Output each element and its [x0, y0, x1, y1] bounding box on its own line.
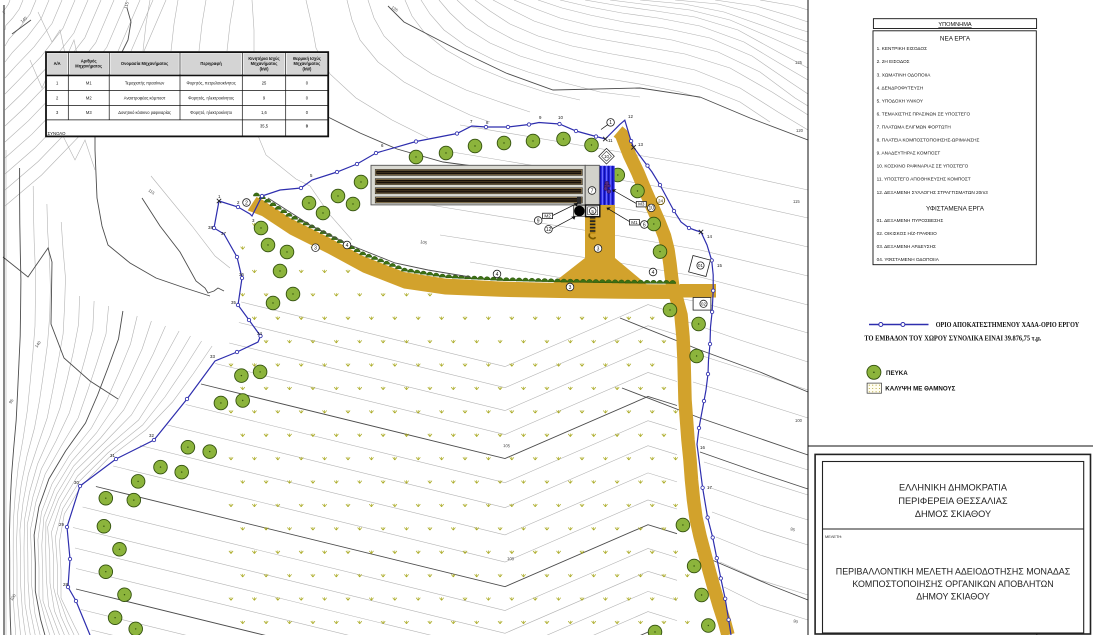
svg-text:Ονομασία Μηχανήματος: Ονομασία Μηχανήματος	[121, 61, 168, 66]
svg-text:11. ΥΠΟΣΤΕΓΟ ΑΠΟΘΗΚΕΥΣΗΣ ΚΟΜΠΟ: 11. ΥΠΟΣΤΕΓΟ ΑΠΟΘΗΚΕΥΣΗΣ ΚΟΜΠΟΣΤ	[877, 177, 971, 182]
svg-text:1. ΚΕΝΤΡΙΚΗ ΕΙΣΟΔΟΣ: 1. ΚΕΝΤΡΙΚΗ ΕΙΣΟΔΟΣ	[877, 46, 928, 51]
svg-text:34: 34	[257, 331, 262, 336]
svg-text:35: 35	[231, 300, 236, 305]
svg-text:03. ΔΕΞΑΜΕΝΗ ΑΡΔΕΥΣΗΣ: 03. ΔΕΞΑΜΕΝΗ ΑΡΔΕΥΣΗΣ	[877, 244, 936, 249]
svg-text:12: 12	[628, 114, 633, 119]
svg-text:ΥΠΟΜΝΗΜΑ: ΥΠΟΜΝΗΜΑ	[938, 22, 972, 28]
svg-text:Μηχανήματος: Μηχανήματος	[75, 64, 102, 69]
svg-text:14: 14	[707, 234, 712, 239]
svg-text:4: 4	[652, 270, 655, 276]
svg-text:Φορητό, ηλεκτροκίνητο: Φορητό, ηλεκτροκίνητο	[190, 110, 233, 115]
svg-text:100: 100	[795, 418, 803, 423]
svg-text:ΝΕΑ ΕΡΓΑ: ΝΕΑ ΕΡΓΑ	[940, 36, 971, 43]
svg-text:ΠΕΥΚΑ: ΠΕΥΚΑ	[886, 370, 908, 377]
svg-text:28: 28	[63, 582, 68, 587]
svg-text:13: 13	[638, 142, 643, 147]
svg-text:M1: M1	[86, 81, 92, 86]
svg-text:7: 7	[591, 188, 594, 194]
svg-text:ΜΕΛΕΤΗ:: ΜΕΛΕΤΗ:	[825, 534, 842, 539]
svg-text:M3: M3	[86, 110, 92, 115]
svg-text:01: 01	[698, 263, 703, 268]
svg-text:10: 10	[604, 154, 609, 159]
svg-text:37: 37	[221, 231, 226, 236]
svg-text:ΚΑΛΥΨΗ ΜΕ ΘΑΜΝΟΥΣ: ΚΑΛΥΨΗ ΜΕ ΘΑΜΝΟΥΣ	[885, 386, 955, 393]
svg-text:4: 4	[496, 272, 499, 278]
svg-text:120: 120	[796, 128, 804, 133]
svg-text:Δονητικό κόσκινο ραφιναρίας: Δονητικό κόσκινο ραφιναρίας	[118, 110, 171, 115]
svg-text:(kW): (kW)	[260, 66, 270, 71]
svg-text:4. ΔΕΝΔΡΟΦΥΤΕΥΣΗ: 4. ΔΕΝΔΡΟΦΥΤΕΥΣΗ	[877, 85, 924, 90]
svg-text:ΠΕΡΙΒΑΛΛΟΝΤΙΚΗ ΜΕΛΕΤΗ ΑΔΕΙΟΔΟΤ: ΠΕΡΙΒΑΛΛΟΝΤΙΚΗ ΜΕΛΕΤΗ ΑΔΕΙΟΔΟΤΗΣΗΣ ΜΟΝΑΔ…	[836, 566, 1071, 576]
svg-text:38: 38	[208, 225, 213, 230]
svg-text:2: 2	[245, 200, 248, 206]
svg-text:5: 5	[591, 209, 594, 214]
svg-text:12. ΔΕΞΑΜΕΝΗ ΣΥΛΛΟΓΗΣ ΣΤΡΑΓΓΙΣ: 12. ΔΕΞΑΜΕΝΗ ΣΥΛΛΟΓΗΣ ΣΤΡΑΓΓΙΣΜΑΤΩΝ 20m3	[877, 190, 989, 195]
svg-text:4: 4	[346, 243, 349, 249]
svg-text:1,6: 1,6	[261, 110, 267, 115]
svg-text:1: 1	[609, 120, 612, 126]
svg-text:ΟΡΙΟ ΑΠΟΚΑΤΕΣΤΗΜΕΝΟΥ ΧΑΔΑ-ΟΡΙΟ: ΟΡΙΟ ΑΠΟΚΑΤΕΣΤΗΜΕΝΟΥ ΧΑΔΑ-ΟΡΙΟ ΕΡΓΟΥ	[936, 320, 1080, 329]
svg-text:3: 3	[569, 285, 572, 291]
svg-text:02. ΟΙΚΙΣΚΟΣ Η/Ζ-ΓΡΑΦΕΙΟ: 02. ΟΙΚΙΣΚΟΣ Η/Ζ-ΓΡΑΦΕΙΟ	[877, 231, 938, 236]
svg-text:M3: M3	[638, 202, 645, 207]
svg-text:Αναστροφέας κόμποστ: Αναστροφέας κόμποστ	[124, 96, 166, 101]
svg-text:10: 10	[558, 115, 563, 120]
svg-text:32: 32	[149, 433, 154, 438]
svg-text:3. ΧΩΜΑΤΙΝΗ ΟΔΟΠΟΙΙΑ: 3. ΧΩΜΑΤΙΝΗ ΟΔΟΠΟΙΙΑ	[877, 72, 932, 77]
svg-text:115: 115	[793, 199, 800, 204]
svg-text:9. ΑΝΑΔΕΥΤΗΡΑΣ ΚΟΜΠΟΣΤ: 9. ΑΝΑΔΕΥΤΗΡΑΣ ΚΟΜΠΟΣΤ	[877, 151, 941, 156]
svg-text:9: 9	[537, 218, 540, 224]
svg-text:2. 2Η ΕΙΣΟΔΟΣ: 2. 2Η ΕΙΣΟΔΟΣ	[877, 59, 910, 64]
svg-text:16: 16	[700, 445, 705, 450]
svg-text:02: 02	[701, 301, 706, 306]
svg-text:Φορητός, ηλεκτροκίνητος: Φορητός, ηλεκτροκίνητος	[188, 96, 234, 101]
svg-text:3: 3	[314, 246, 317, 252]
svg-text:M1: M1	[631, 220, 638, 225]
svg-text:12: 12	[546, 227, 552, 233]
svg-text:6: 6	[643, 222, 646, 228]
svg-text:5. ΥΠΟΔΟΧΗ ΥΛΙΚΟΥ: 5. ΥΠΟΔΟΧΗ ΥΛΙΚΟΥ	[877, 98, 924, 103]
svg-text:11: 11	[608, 138, 613, 143]
svg-text:29: 29	[59, 522, 64, 527]
svg-text:M2: M2	[86, 96, 92, 101]
svg-text:25: 25	[262, 81, 267, 86]
svg-text:10. ΚΟΣΚΙΝΟ ΡΑΦΙΝΑΡΙΑΣ ΣΕ ΥΠΟΣ: 10. ΚΟΣΚΙΝΟ ΡΑΦΙΝΑΡΙΑΣ ΣΕ ΥΠΟΣΤΕΓΟ	[877, 164, 969, 169]
svg-text:6. ΤΕΜΑΧΙΣΤΗΣ ΠΡΑΣΙΝΩΝ ΣΕ ΥΠΟΣ: 6. ΤΕΜΑΧΙΣΤΗΣ ΠΡΑΣΙΝΩΝ ΣΕ ΥΠΟΣΤΕΓΟ	[877, 112, 971, 117]
svg-text:ΠΕΡΙΦΕΡΕΙΑ ΘΕΣΣΑΛΙΑΣ: ΠΕΡΙΦΕΡΕΙΑ ΘΕΣΣΑΛΙΑΣ	[898, 496, 1007, 506]
svg-text:ΤΟ ΕΜΒΑΔΟΝ ΤΟΥ ΧΩΡΟΥ ΣΥΝΟΛΙΚΑ: ΤΟ ΕΜΒΑΔΟΝ ΤΟΥ ΧΩΡΟΥ ΣΥΝΟΛΙΚΑ ΕΙΝΑΙ 39.8…	[864, 333, 1041, 342]
svg-text:35,5: 35,5	[260, 124, 269, 129]
svg-text:33: 33	[210, 354, 215, 359]
svg-text:8. ΠΛΑΤΕΙΑ ΚΟΜΠΟΣΤΟΠΟΙΗΣΗΣ-ΩΡΙ: 8. ΠΛΑΤΕΙΑ ΚΟΜΠΟΣΤΟΠΟΙΗΣΗΣ-ΩΡΙΜΑΝΣΗΣ	[877, 138, 980, 143]
svg-text:10: 10	[649, 206, 655, 212]
svg-text:36: 36	[239, 272, 244, 277]
svg-text:Φορητός, πετρελαιοκίνητος: Φορητός, πετρελαιοκίνητος	[186, 81, 235, 86]
svg-text:24: 24	[658, 198, 664, 203]
svg-text:ΔΗΜΟΣ ΣΚΙΑΘΟΥ: ΔΗΜΟΣ ΣΚΙΑΘΟΥ	[915, 509, 991, 519]
svg-text:04. ΥΦΙΣΤΑΜΕΝΗ ΟΔΟΠΟΙΙΑ: 04. ΥΦΙΣΤΑΜΕΝΗ ΟΔΟΠΟΙΙΑ	[877, 257, 940, 262]
svg-text:105: 105	[503, 443, 511, 448]
svg-text:3: 3	[597, 246, 600, 252]
svg-text:30: 30	[74, 480, 79, 485]
svg-text:(kW): (kW)	[302, 66, 312, 71]
svg-text:Α/Α: Α/Α	[54, 61, 61, 66]
svg-text:Τεμαχιστής πρασίνων: Τεμαχιστής πρασίνων	[125, 81, 164, 86]
svg-text:ΥΦΙΣΤΑΜΕΝΑ ΕΡΓΑ: ΥΦΙΣΤΑΜΕΝΑ ΕΡΓΑ	[926, 206, 985, 213]
svg-text:M2: M2	[544, 213, 551, 218]
svg-text:ΔΗΜΟΥ ΣΚΙΑΘΟΥ: ΔΗΜΟΥ ΣΚΙΑΘΟΥ	[916, 591, 990, 601]
svg-text:17: 17	[707, 485, 712, 490]
svg-text:31: 31	[110, 453, 115, 458]
svg-text:01. ΔΕΞΑΜΕΝΗ ΠΥΡΟΣΒΕΣΗΣ: 01. ΔΕΞΑΜΕΝΗ ΠΥΡΟΣΒΕΣΗΣ	[877, 218, 944, 223]
svg-text:15: 15	[717, 263, 722, 268]
svg-text:125: 125	[795, 60, 803, 65]
svg-text:7. ΠΛΑΤΩΜΑ ΕΛΙΓΜΩΝ ΦΟΡΤΩΤΗ: 7. ΠΛΑΤΩΜΑ ΕΛΙΓΜΩΝ ΦΟΡΤΩΤΗ	[877, 125, 951, 130]
svg-text:Περιγραφή: Περιγραφή	[200, 61, 222, 66]
svg-text:ΣΥΝΟΛΟ: ΣΥΝΟΛΟ	[48, 131, 67, 136]
svg-text:ΚΟΜΠΟΣΤΟΠΟΙΗΣΗΣ ΟΡΓΑΝΙΚΩΝ ΑΠΟΒ: ΚΟΜΠΟΣΤΟΠΟΙΗΣΗΣ ΟΡΓΑΝΙΚΩΝ ΑΠΟΒΛΗΤΩΝ	[852, 579, 1053, 589]
svg-text:100: 100	[507, 556, 515, 561]
svg-text:ΕΛΛΗΝΙΚΗ ΔΗΜΟΚΡΑΤΙΑ: ΕΛΛΗΝΙΚΗ ΔΗΜΟΚΡΑΤΙΑ	[899, 483, 1008, 493]
